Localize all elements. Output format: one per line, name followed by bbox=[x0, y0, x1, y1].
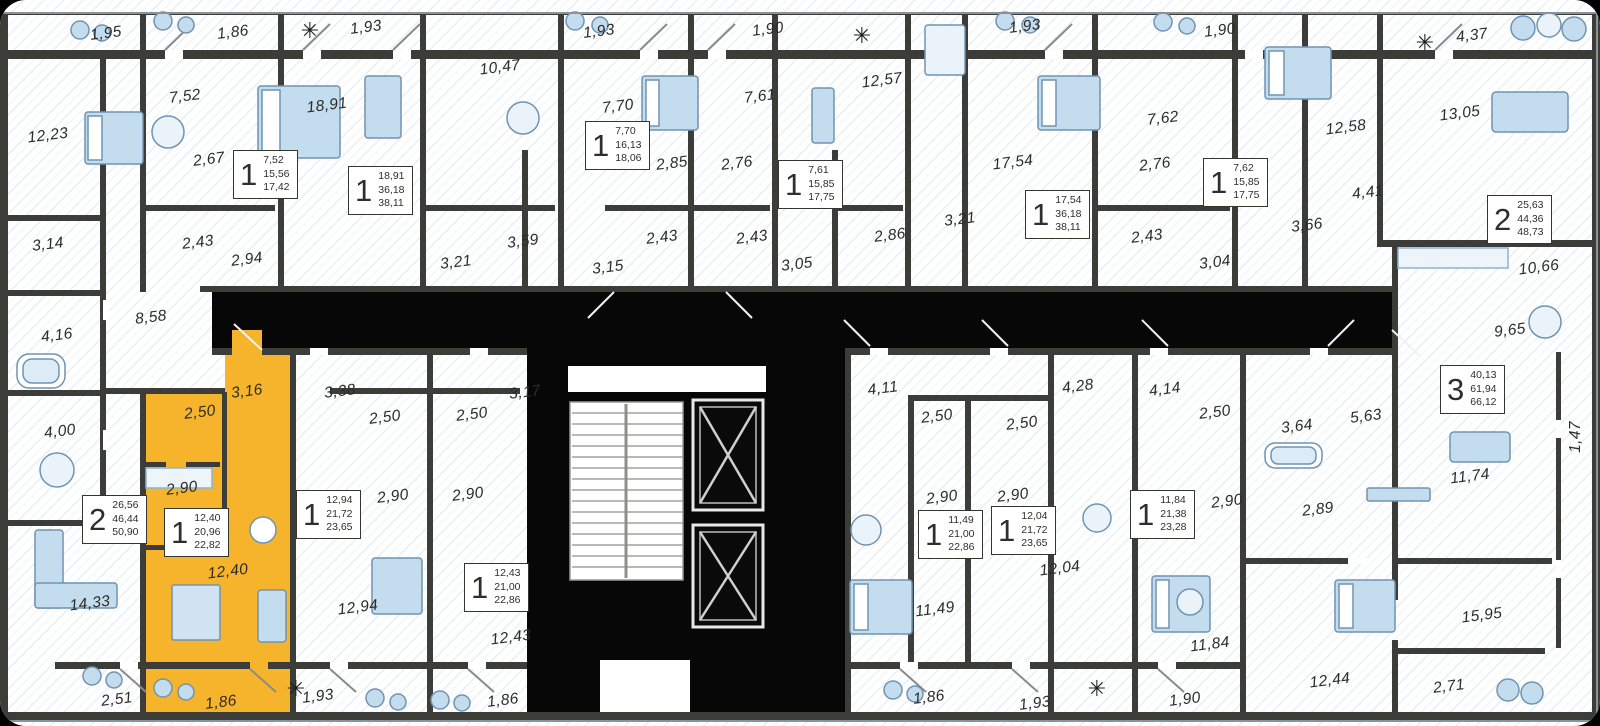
unit-areas: 40,1361,9466,12 bbox=[1470, 369, 1496, 410]
svg-text:✳: ✳ bbox=[287, 677, 305, 702]
unit-area-value: 22,82 bbox=[194, 539, 220, 553]
unit-area-value: 15,56 bbox=[263, 168, 289, 182]
unit-rooms-count: 1 bbox=[1032, 199, 1049, 230]
stairwell bbox=[570, 402, 683, 580]
unit-rooms-count: 1 bbox=[303, 499, 320, 530]
unit-areas: 25,6344,3648,73 bbox=[1517, 199, 1543, 240]
unit-area-value: 21,00 bbox=[948, 528, 974, 542]
unit-areas: 26,5646,4450,90 bbox=[112, 499, 138, 540]
unit-area-value: 50,90 bbox=[112, 526, 138, 540]
unit-card[interactable]: 111,8421,3823,28 bbox=[1130, 490, 1195, 539]
unit-rooms-count: 2 bbox=[89, 504, 106, 535]
unit-rooms-count: 1 bbox=[171, 517, 188, 548]
elevator-shaft bbox=[693, 400, 763, 510]
unit-area-value: 66,12 bbox=[1470, 396, 1496, 410]
floor-plan-drawing: ✳✳ ✳✳ ✳ bbox=[0, 0, 1600, 726]
unit-areas: 12,4321,0022,86 bbox=[494, 567, 520, 608]
unit-area-value: 17,42 bbox=[263, 181, 289, 195]
unit-area-value: 11,84 bbox=[1160, 494, 1186, 508]
unit-card[interactable]: 117,5436,1838,11 bbox=[1025, 190, 1090, 239]
unit-area-value: 17,75 bbox=[808, 191, 834, 205]
svg-text:✳: ✳ bbox=[301, 19, 319, 44]
unit-area-value: 23,65 bbox=[1021, 537, 1047, 551]
unit-area-value: 23,65 bbox=[326, 521, 352, 535]
unit-area-value: 12,04 bbox=[1021, 510, 1047, 524]
elevator-shaft bbox=[693, 525, 763, 627]
unit-rooms-count: 1 bbox=[592, 130, 609, 161]
unit-area-value: 38,11 bbox=[378, 197, 404, 211]
unit-area-value: 7,62 bbox=[1233, 162, 1259, 176]
unit-area-value: 21,72 bbox=[1021, 524, 1047, 538]
unit-area-value: 18,06 bbox=[615, 152, 641, 166]
unit-area-value: 46,44 bbox=[112, 513, 138, 527]
unit-areas: 7,6115,8517,75 bbox=[808, 164, 834, 205]
unit-areas: 12,0421,7223,65 bbox=[1021, 510, 1047, 551]
svg-text:✳: ✳ bbox=[853, 24, 871, 49]
unit-area-value: 11,49 bbox=[948, 514, 974, 528]
unit-areas: 12,9421,7223,65 bbox=[326, 494, 352, 535]
unit-rooms-count: 1 bbox=[355, 175, 372, 206]
unit-area-value: 17,75 bbox=[1233, 189, 1259, 203]
unit-area-value: 12,40 bbox=[194, 512, 220, 526]
svg-text:✳: ✳ bbox=[1088, 677, 1106, 702]
unit-rooms-count: 1 bbox=[1137, 499, 1154, 530]
unit-area-value: 21,38 bbox=[1160, 508, 1186, 522]
unit-card[interactable]: 225,6344,3648,73 bbox=[1487, 195, 1552, 244]
unit-area-value: 12,43 bbox=[494, 567, 520, 581]
unit-rooms-count: 1 bbox=[998, 515, 1015, 546]
unit-area-value: 15,85 bbox=[808, 178, 834, 192]
unit-area-value: 15,85 bbox=[1233, 176, 1259, 190]
unit-areas: 17,5436,1838,11 bbox=[1055, 194, 1081, 235]
unit-area-value: 18,91 bbox=[378, 170, 404, 184]
unit-rooms-count: 3 bbox=[1447, 374, 1464, 405]
unit-area-value: 23,28 bbox=[1160, 521, 1186, 535]
unit-card[interactable]: 340,1361,9466,12 bbox=[1440, 365, 1505, 414]
unit-card[interactable]: 111,4921,0022,86 bbox=[918, 510, 983, 559]
unit-card[interactable]: 112,4020,9622,82 bbox=[164, 508, 229, 557]
unit-card[interactable]: 17,7016,1318,06 bbox=[585, 121, 650, 170]
unit-rooms-count: 1 bbox=[240, 159, 257, 190]
corridor bbox=[212, 292, 1392, 348]
unit-areas: 7,5215,5617,42 bbox=[263, 154, 289, 195]
unit-rooms-count: 1 bbox=[925, 519, 942, 550]
unit-card[interactable]: 118,9136,1838,11 bbox=[348, 166, 413, 215]
unit-area-value: 36,18 bbox=[378, 184, 404, 198]
svg-text:✳: ✳ bbox=[1416, 31, 1434, 56]
unit-card[interactable]: 112,0421,7223,65 bbox=[991, 506, 1056, 555]
unit-area-value: 20,96 bbox=[194, 526, 220, 540]
unit-rooms-count: 1 bbox=[1210, 167, 1227, 198]
unit-areas: 11,4921,0022,86 bbox=[948, 514, 974, 555]
unit-area-value: 48,73 bbox=[1517, 226, 1543, 240]
unit-card[interactable]: 226,5646,4450,90 bbox=[82, 495, 147, 544]
unit-area-value: 44,36 bbox=[1517, 213, 1543, 227]
unit-area-value: 16,13 bbox=[615, 139, 641, 153]
unit-area-value: 25,63 bbox=[1517, 199, 1543, 213]
unit-area-value: 61,94 bbox=[1470, 383, 1496, 397]
unit-area-value: 26,56 bbox=[112, 499, 138, 513]
unit-areas: 12,4020,9622,82 bbox=[194, 512, 220, 553]
unit-area-value: 36,18 bbox=[1055, 208, 1081, 222]
unit-card[interactable]: 112,4321,0022,86 bbox=[464, 563, 529, 612]
floor-plan: ✳✳ ✳✳ ✳ 1,951,861,931,931,901,931,904,37… bbox=[0, 0, 1600, 726]
unit-area-value: 40,13 bbox=[1470, 369, 1496, 383]
unit-rooms-count: 1 bbox=[471, 572, 488, 603]
unit-area-value: 7,70 bbox=[615, 125, 641, 139]
service-core bbox=[527, 348, 845, 712]
unit-area-value: 17,54 bbox=[1055, 194, 1081, 208]
unit-areas: 11,8421,3823,28 bbox=[1160, 494, 1186, 535]
unit-area-value: 7,61 bbox=[808, 164, 834, 178]
unit-area-value: 22,86 bbox=[948, 541, 974, 555]
unit-areas: 7,7016,1318,06 bbox=[615, 125, 641, 166]
unit-area-value: 7,52 bbox=[263, 154, 289, 168]
unit-areas: 18,9136,1838,11 bbox=[378, 170, 404, 211]
unit-card[interactable]: 112,9421,7223,65 bbox=[296, 490, 361, 539]
unit-area-value: 12,94 bbox=[326, 494, 352, 508]
unit-area-value: 21,00 bbox=[494, 581, 520, 595]
unit-area-value: 22,86 bbox=[494, 594, 520, 608]
unit-card[interactable]: 17,5215,5617,42 bbox=[233, 150, 298, 199]
unit-card[interactable]: 17,6215,8517,75 bbox=[1203, 158, 1268, 207]
unit-card[interactable]: 17,6115,8517,75 bbox=[778, 160, 843, 209]
unit-areas: 7,6215,8517,75 bbox=[1233, 162, 1259, 203]
unit-area-value: 38,11 bbox=[1055, 221, 1081, 235]
unit-rooms-count: 2 bbox=[1494, 204, 1511, 235]
unit-area-value: 21,72 bbox=[326, 508, 352, 522]
unit-rooms-count: 1 bbox=[785, 169, 802, 200]
